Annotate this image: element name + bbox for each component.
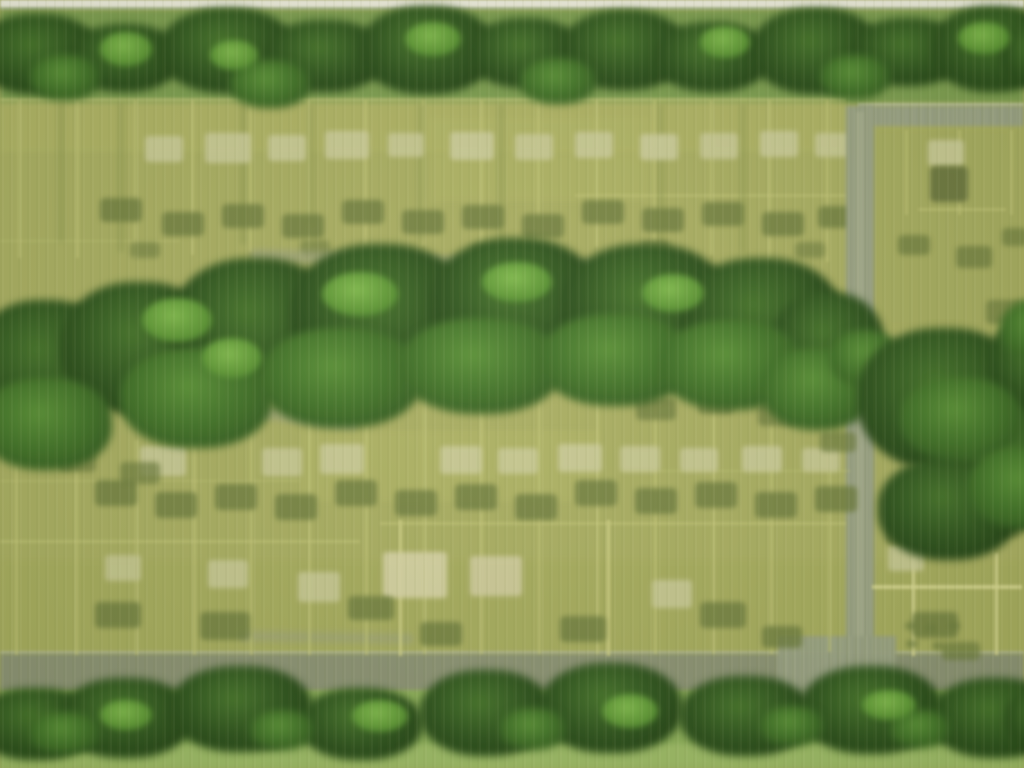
lot-line-vertical [15,445,18,655]
plot-pad [470,556,522,596]
plot-marking [100,198,142,222]
lot-line-vertical [607,520,610,656]
plot-pad [742,446,782,472]
lot-line-vertical [134,100,137,258]
lot-line-horizontal [872,585,1022,589]
plot-pad [268,135,306,161]
plot-marking [906,640,918,648]
tree-mid [900,378,1022,460]
tree-highlight [142,298,212,342]
tree-highlight [958,22,1010,54]
plot-pad [320,444,364,474]
plot-pad [498,448,538,474]
plot-marking [455,484,497,510]
plot-pad [325,131,369,159]
field-shadow-streak [118,102,124,252]
tree-mid [520,58,596,104]
plot-marking [942,642,980,660]
plot-marking [635,488,677,514]
tree-highlight [700,26,750,58]
tree-mid [760,706,824,746]
plot-pad [760,131,798,157]
lot-line-vertical [250,420,253,655]
plot-marking [642,208,684,232]
plot-marking [515,494,557,520]
plot-marking [130,242,160,258]
lot-line-vertical [1010,130,1013,215]
tree-highlight [405,22,461,56]
lot-line-vertical [308,405,311,655]
plot-marking [925,624,937,632]
tree-highlight [100,700,152,730]
plot-marking [395,490,437,516]
plot-pad [208,560,248,588]
tree-highlight [210,40,258,70]
plot-pad [620,446,660,472]
tree-highlight [202,338,262,378]
terrain-band [430,118,650,202]
plot-marking [335,480,377,506]
tree-mid [250,710,314,750]
plot-marking [120,462,160,484]
aerial-stage [0,0,1024,768]
plot-marking [815,486,857,512]
plot-pad [440,446,482,474]
tree-mid [0,378,112,470]
plot-pad [640,134,678,160]
plot-pad [680,448,718,472]
plot-pad [450,132,494,160]
lot-line-vertical [826,100,829,262]
plot-pad [298,572,340,602]
plot-marking [222,204,264,228]
field-shadow-streak [740,104,746,252]
plot-pad [205,133,251,163]
lot-line-vertical [538,388,541,654]
plot-marking [582,200,624,224]
plot-marking [420,622,462,646]
lot-line-horizontal [0,540,360,543]
plot-pad [700,133,738,159]
lot-line-vertical [595,100,598,247]
plot-marking [956,246,992,268]
plot-marking [560,616,606,642]
road [858,106,1024,126]
tree-mid [30,712,100,754]
plot-marking [215,484,257,510]
tree-highlight [322,272,398,316]
plot-pad [558,444,602,472]
plot-marking [275,494,317,520]
plot-marking [575,480,617,506]
plot-marking [700,602,746,628]
plot-pad [388,133,424,157]
plot-marking [695,482,737,508]
tree-highlight [642,274,704,312]
plot-pad [105,555,141,581]
plot-marking [1002,228,1024,246]
lot-line-horizontal [0,98,846,101]
plot-pad [652,580,692,608]
tree-mid [820,55,890,99]
plot-marking [402,210,444,234]
lot-line-horizontal [380,522,846,525]
tree-mid [30,55,100,100]
plot-marking [462,205,504,229]
lot-line-vertical [995,553,998,655]
plot-pad [928,140,964,166]
lot-line-horizontal [918,208,1006,211]
border-strip [0,0,1024,7]
plot-marking [762,212,804,236]
plot-marking [95,602,141,628]
plot-pad [262,448,302,476]
lot-line-vertical [480,388,483,654]
plot-marking [905,622,917,630]
plot-marking [522,214,564,238]
plot-marking [932,642,944,650]
plot-marking [820,432,856,452]
tree-highlight [862,690,916,720]
tree-mid [500,708,566,750]
lot-line-vertical [249,100,252,252]
plot-marking [282,214,324,238]
lot-line-vertical [76,100,79,258]
plot-pad [575,132,613,158]
plot-marking [755,492,797,518]
field-shadow-streak [58,102,64,242]
tree-highlight [482,262,552,302]
lot-line-vertical [710,100,713,255]
tree-mid [400,318,562,414]
plot-pad [145,136,183,162]
plot-marking [898,235,930,255]
plot-marking [200,612,250,640]
plot-marking [342,200,384,224]
tree-highlight [602,694,658,728]
lot-line-horizontal [575,194,846,197]
plot-marking [762,626,802,648]
plot-marking [930,166,968,202]
plot-marking [948,622,960,630]
plot-pad [515,134,553,160]
tree-highlight [352,700,408,732]
plot-marking [348,596,394,620]
lot-line-vertical [905,130,908,215]
tree-mid [260,328,422,428]
plot-pad [815,133,849,157]
lot-line-vertical [364,100,367,248]
lot-line-vertical [768,100,771,260]
plot-marking [795,242,825,258]
plot-marking [162,212,204,236]
lot-line-vertical [75,445,78,655]
tree-highlight [100,32,152,66]
plot-pad [383,552,447,598]
aerial-photo [0,0,1024,768]
plot-marking [155,492,197,518]
plot-marking [702,202,744,226]
lot-line-vertical [18,100,21,258]
field-shadow-streak [308,104,314,224]
